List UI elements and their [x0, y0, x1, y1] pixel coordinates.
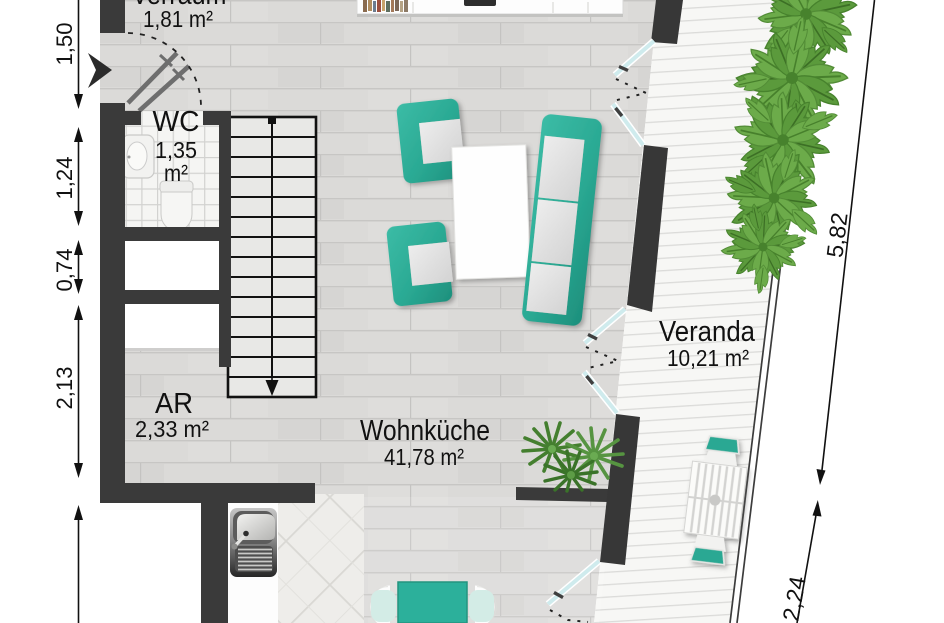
svg-text:2,33 m²: 2,33 m² [135, 416, 209, 442]
svg-text:0,74: 0,74 [52, 249, 77, 292]
svg-text:1,50: 1,50 [52, 23, 77, 66]
svg-text:WC: WC [153, 106, 200, 138]
svg-text:10,21 m²: 10,21 m² [667, 345, 749, 371]
svg-text:Wohnküche: Wohnküche [360, 415, 490, 447]
svg-text:m²: m² [164, 160, 188, 186]
svg-text:41,78 m²: 41,78 m² [384, 444, 464, 470]
svg-text:2,24: 2,24 [777, 574, 810, 623]
svg-text:1,81 m²: 1,81 m² [143, 6, 213, 32]
svg-text:5,82: 5,82 [821, 211, 852, 259]
svg-text:Veranda: Veranda [659, 316, 756, 348]
svg-text:1,24: 1,24 [52, 157, 77, 200]
svg-text:2,13: 2,13 [52, 367, 77, 410]
